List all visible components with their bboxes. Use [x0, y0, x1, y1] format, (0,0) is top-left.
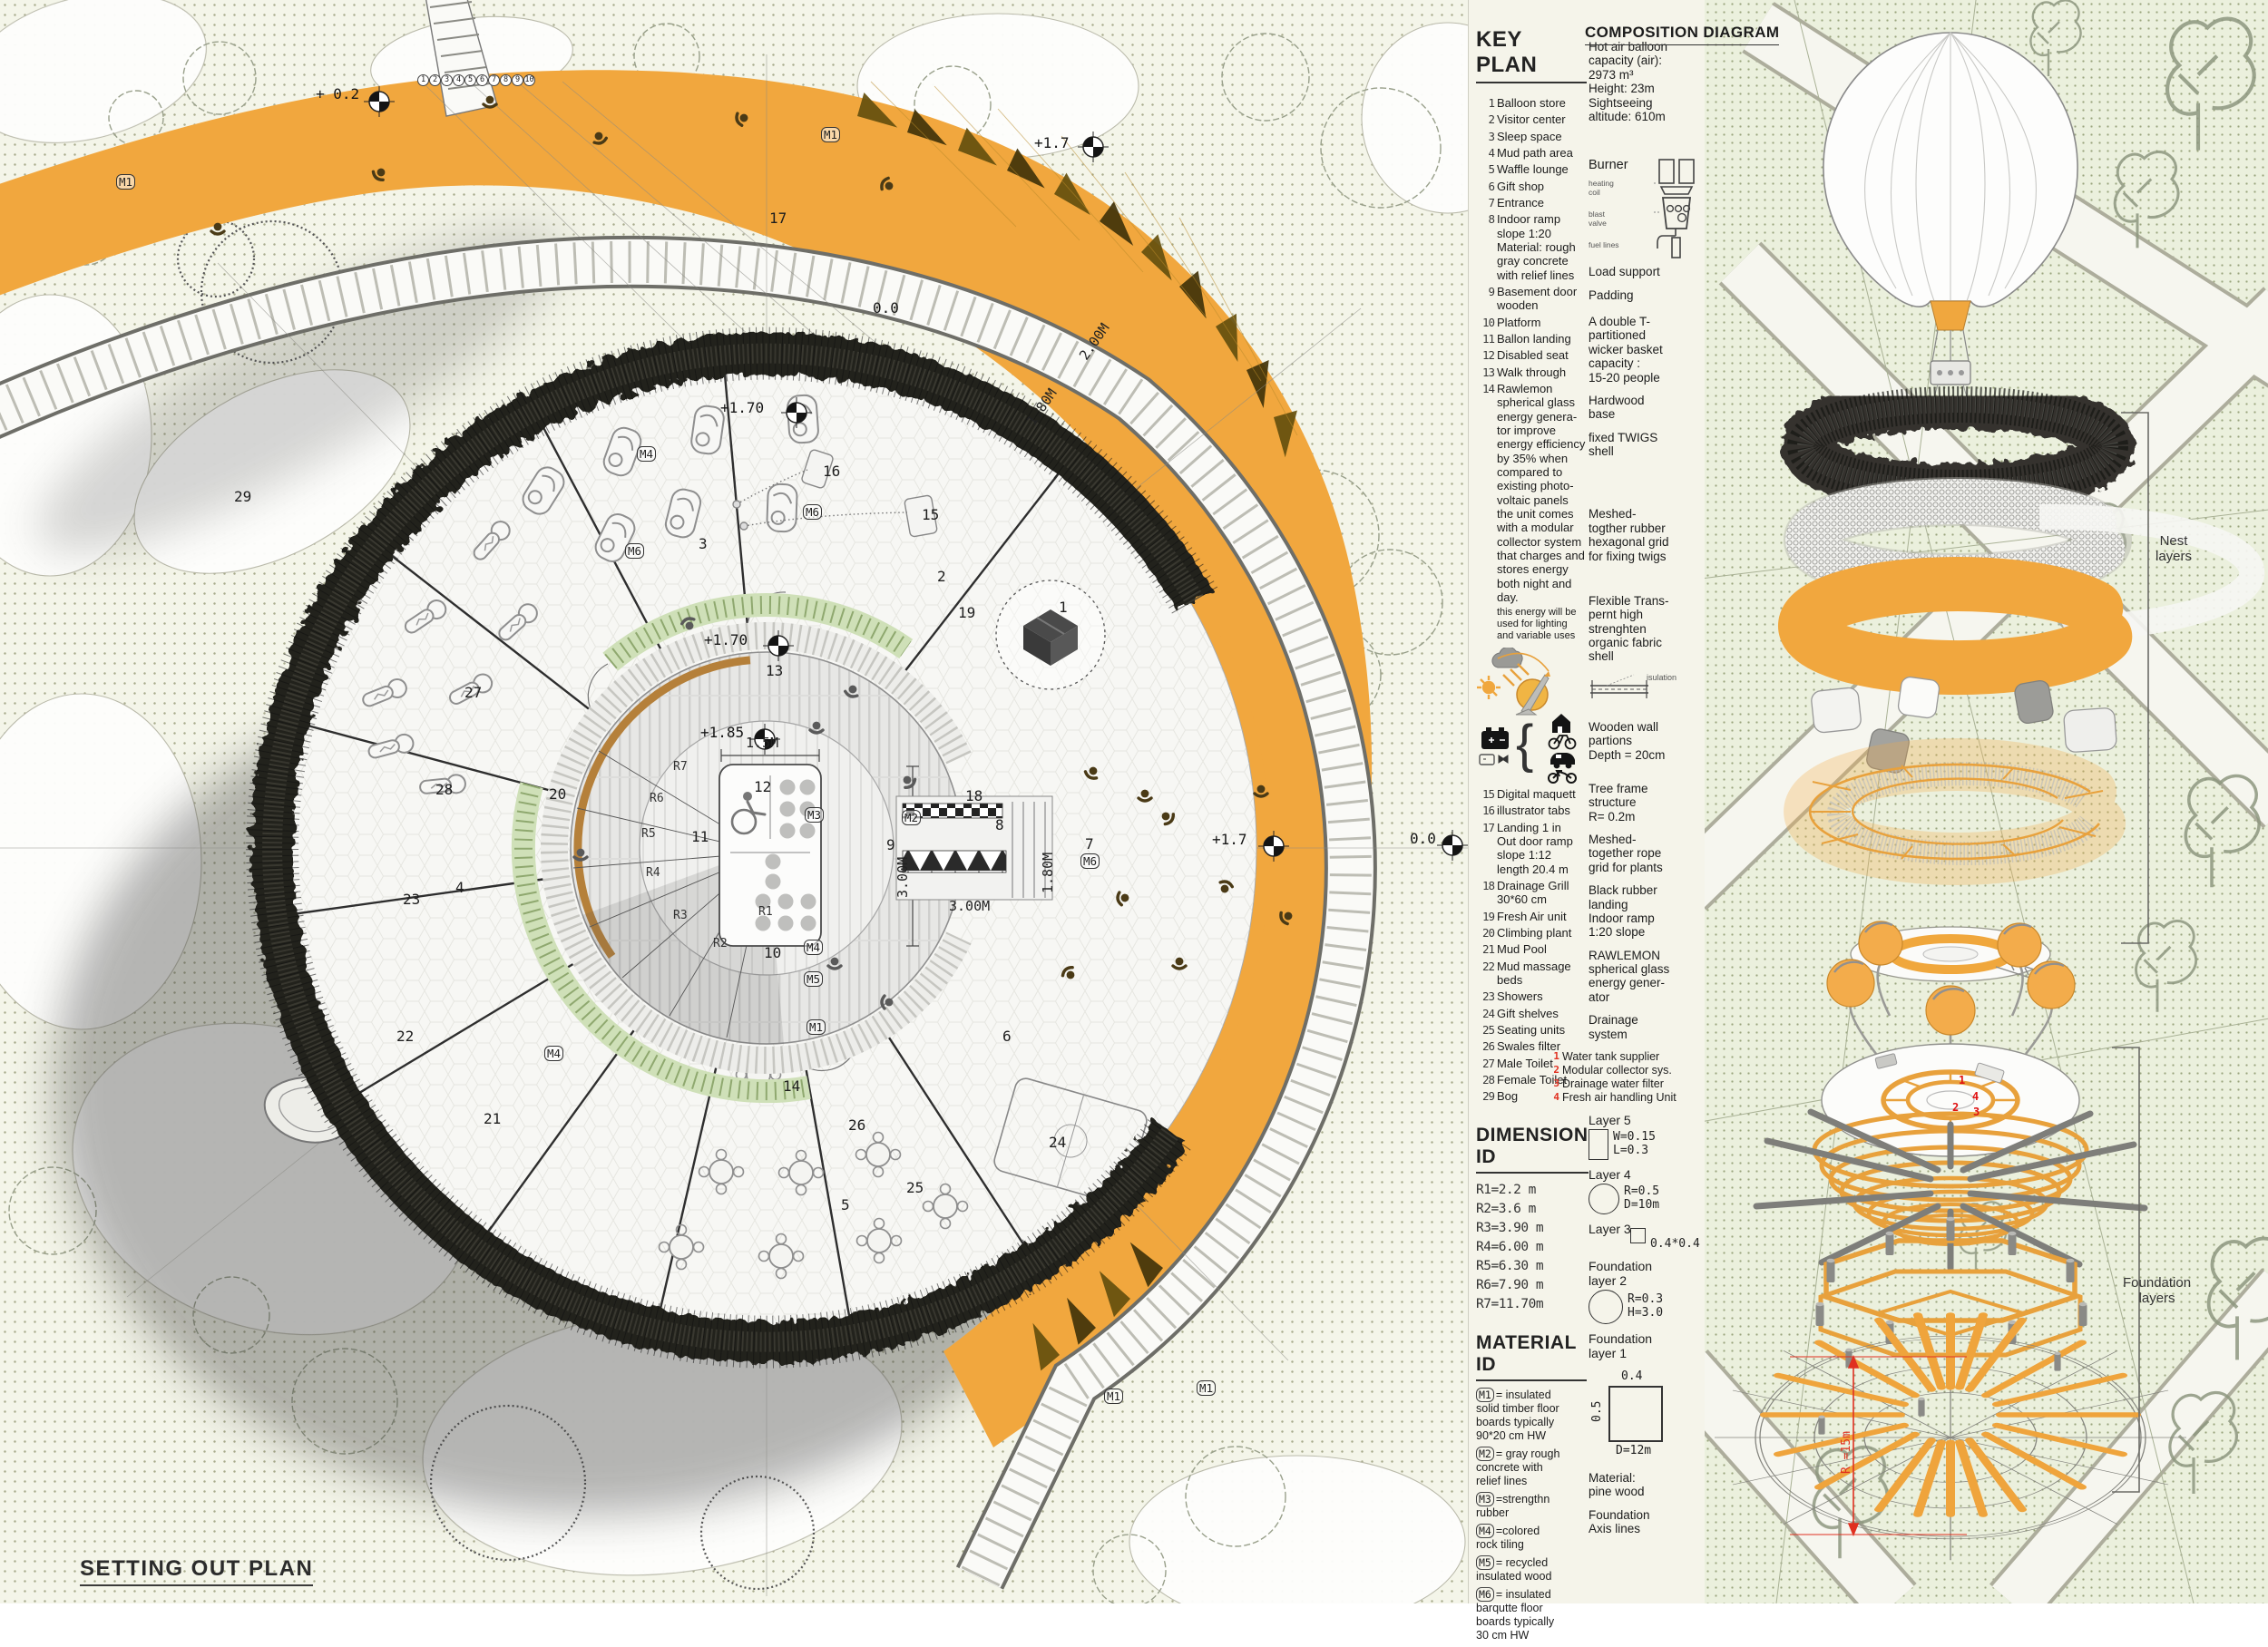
axon-drawing — [1704, 0, 2268, 1603]
layer-shape-icon — [1589, 1129, 1608, 1160]
fabric-note: Flexible Trans- pernt high strenghten or… — [1589, 594, 1705, 664]
material-id-heading: MATERIAL ID — [1476, 1332, 1587, 1381]
key-plan-item: 20 Climbing plant — [1476, 926, 1587, 940]
load-support-note: Load support — [1589, 265, 1705, 278]
key-plan-item: 14 Rawlemon spherical glass energy gener… — [1476, 382, 1587, 604]
key-plan-item: 7 Entrance — [1476, 196, 1587, 210]
key-plan-item: 2 Visitor center — [1476, 112, 1587, 126]
key-plan-item: 21 Mud Pool — [1476, 942, 1587, 956]
material-id-item: M5= recycled insulated wood — [1476, 1556, 1587, 1584]
bicycle-icon — [1549, 736, 1576, 749]
hardwood-note: Hardwood base — [1589, 394, 1705, 422]
isulation-note: isulation — [1589, 673, 1705, 713]
burner-fuel-label: fuel lines — [1589, 241, 1619, 249]
key-plan-item: 8 Indoor ramp slope 1:20 Material: rough… — [1476, 212, 1587, 282]
drainage-item: 2 Modular collector sys. — [1547, 1064, 1705, 1077]
key-plan-item: 19 Fresh Air unit — [1476, 910, 1587, 923]
rawlemon-note: RAWLEMON spherical glass energy gener- a… — [1589, 949, 1705, 1005]
key-plan-heading: KEY PLAN — [1476, 27, 1587, 83]
entrance-corridor — [896, 796, 1052, 900]
key-plan-item: 6 Gift shop — [1476, 180, 1587, 193]
axis-note: Foundation Axis lines — [1589, 1508, 1705, 1536]
key-plan-item: 22 Mud massage beds — [1476, 960, 1587, 988]
key-plan-item: 4 Mud path area — [1476, 146, 1587, 160]
core-unit — [719, 765, 821, 946]
key-plan-item: 3 Sleep space — [1476, 130, 1587, 143]
material-note: Material: pine wood — [1589, 1471, 1705, 1499]
motorbike-icon — [1549, 771, 1576, 783]
dimension-row: R1=2.2 m — [1476, 1181, 1587, 1200]
layer-item: Layer 5 W=0.15 L=0.3 — [1589, 1113, 1705, 1160]
energy-icons: { — [1476, 648, 1587, 784]
house-icon — [1552, 714, 1570, 733]
key-plan-item: this energy will be used for lighting an… — [1476, 607, 1587, 642]
presentation-board: 2927282023422211426524256321911615131112… — [0, 0, 2268, 1603]
balloon-store-icon — [996, 580, 1105, 689]
key-plan-item: 16 illustrator tabs — [1476, 804, 1587, 817]
tree-frame-note: Tree frame structure R= 0.2m — [1589, 782, 1705, 823]
balloon-specs: Hot air balloon capacity (air): 2973 m³ … — [1589, 40, 1705, 123]
layer-item: Foundation layer 1 — [1589, 1331, 1705, 1362]
material-id-item: M1= insulated solid timber floor boards … — [1476, 1389, 1587, 1443]
foundation-square-diagram: 0.4 0.5 D=12m — [1589, 1369, 1679, 1471]
layer-item: Layer 4 R=0.5 D=10m — [1589, 1167, 1705, 1214]
key-plan-item: 25 Seating units — [1476, 1023, 1587, 1037]
wooden-wall-note: Wooden wall partions Depth = 20cm — [1589, 720, 1705, 762]
tree-frame-layer — [1810, 765, 2103, 859]
battery-icon — [1480, 727, 1509, 765]
key-plan-item: 13 Walk through — [1476, 365, 1587, 379]
isulation-icon — [1589, 673, 1652, 704]
material-id-item: M3=strengthn rubber — [1476, 1493, 1587, 1520]
material-id-item: M4=colored rock tiling — [1476, 1525, 1587, 1552]
mesh-rope-note: Meshed- together rope grid for plants — [1589, 833, 1705, 874]
black-rubber-note: Black rubber landing Indoor ramp 1:20 sl… — [1589, 883, 1705, 940]
padding-note: Padding — [1589, 288, 1705, 302]
drainage-list: 1 Water tank supplier 2 Modular collecto… — [1547, 1050, 1705, 1104]
layer-shape-icon — [1630, 1228, 1646, 1243]
balloon-skirt — [1931, 301, 1970, 330]
key-plan-item: 10 Platform — [1476, 316, 1587, 329]
twigs-note: fixed TWIGS shell — [1589, 431, 1705, 459]
key-plan-item: 1 Balloon store — [1476, 96, 1587, 110]
drainage-title: Drainage system — [1589, 1013, 1705, 1041]
burner-icon — [1652, 158, 1703, 263]
sun-icon — [1477, 676, 1501, 699]
key-plan-item: 5 Waffle lounge — [1476, 162, 1587, 176]
key-plan-item: 9 Basement door wooden — [1476, 285, 1587, 313]
material-id-item: M6= insulated barqutte floor boards typi… — [1476, 1588, 1587, 1642]
brace: { — [1516, 715, 1533, 774]
layer-shape-icon — [1589, 1290, 1623, 1324]
plan-drawing — [0, 0, 1488, 1603]
composition-column: Hot air balloon capacity (air): 2973 m³ … — [1589, 0, 1705, 1647]
basket-note: A double T- partitioned wicker basket ca… — [1589, 315, 1705, 385]
dimension-row: R4=6.00 m — [1476, 1238, 1587, 1257]
key-plan-item: 18 Drainage Grill 30*60 cm — [1476, 879, 1587, 907]
layer-item: Layer 3 0.4*0.4 — [1589, 1222, 1705, 1252]
burner-note: Burner heating coil blast valve fuel lin… — [1589, 158, 1705, 265]
setting-out-plan: 2927282023422211426524256321911615131112… — [0, 0, 1488, 1603]
legend-panel: COMPOSITION DIAGRAM KEY PLAN 1 Balloon s… — [1468, 0, 1705, 1603]
key-plan-item: 23 Showers — [1476, 989, 1587, 1003]
key-plan-item: 17 Landing 1 in Out door ramp slope 1:12… — [1476, 821, 1587, 876]
burner-valve-label: blast valve — [1589, 210, 1607, 228]
dimension-row: R3=3.90 m — [1476, 1219, 1587, 1238]
drainage-item: 4 Fresh air handling Unit — [1547, 1091, 1705, 1104]
composition-axon-panel: Nest layers Foundation layers R =15m 142… — [1704, 0, 2268, 1603]
key-plan-item: 15 Digital maquett — [1476, 787, 1587, 801]
key-plan-item: 11 Ballon landing — [1476, 332, 1587, 346]
dimension-row: R5=6.30 m — [1476, 1257, 1587, 1276]
composition-heading: COMPOSITION DIAGRAM — [1585, 24, 1779, 45]
layer-item: Foundation layer 2 R=0.3 H=3.0 — [1589, 1259, 1705, 1324]
mesh-rubber-note: Meshed- togther rubber hexagonal grid fo… — [1589, 507, 1705, 563]
drainage-item: 1 Water tank supplier — [1547, 1050, 1705, 1063]
key-plan-column: KEY PLAN 1 Balloon store 2 Visitor cente… — [1476, 0, 1587, 1647]
key-plan-item: 12 Disabled seat — [1476, 348, 1587, 362]
foundation-square — [1608, 1386, 1663, 1442]
layer-shape-icon — [1589, 1184, 1619, 1214]
burner-coil-label: heating coil — [1589, 180, 1614, 197]
dimension-row: R7=11.70m — [1476, 1295, 1587, 1314]
dimension-row: R2=3.6 m — [1476, 1200, 1587, 1219]
dimension-row: R6=7.90 m — [1476, 1276, 1587, 1295]
car-icon — [1550, 753, 1575, 768]
drainage-item: 3 Drainage water filter — [1547, 1077, 1705, 1090]
dimension-id-heading: DIMENSION ID — [1476, 1125, 1589, 1174]
key-plan-item: 24 Gift shelves — [1476, 1007, 1587, 1020]
material-id-item: M2= gray rough concrete with relief line… — [1476, 1447, 1587, 1488]
